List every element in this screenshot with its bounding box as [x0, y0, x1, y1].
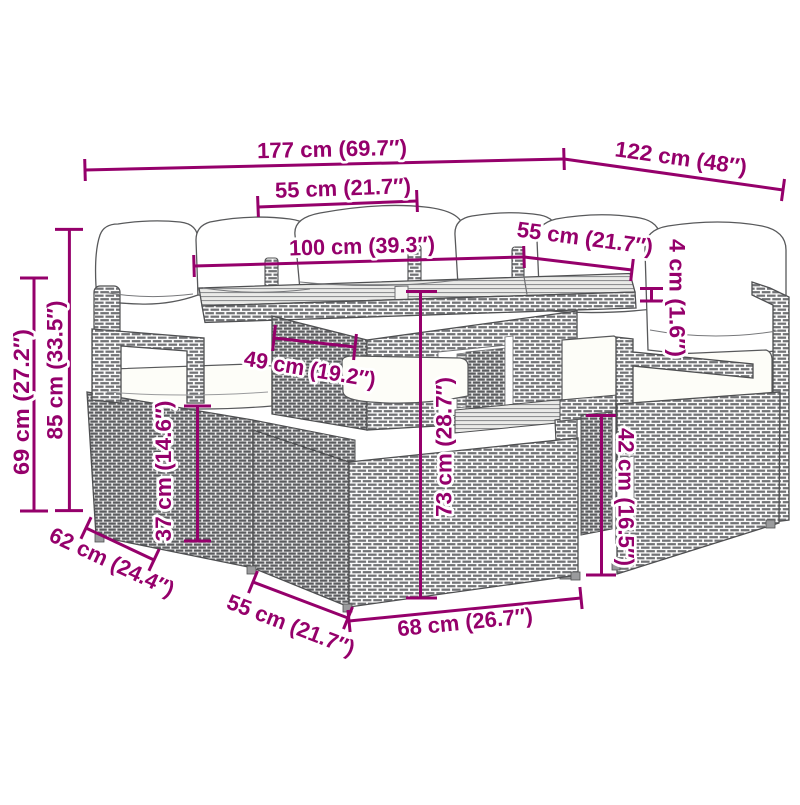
- svg-text:4 cm (1.6″): 4 cm (1.6″): [665, 239, 690, 357]
- svg-text:69 cm (27.2″): 69 cm (27.2″): [9, 329, 34, 475]
- svg-text:42 cm (16.5″): 42 cm (16.5″): [614, 428, 639, 566]
- svg-text:55 cm (21.7″): 55 cm (21.7″): [275, 173, 412, 203]
- svg-text:177 cm (69.7″): 177 cm (69.7″): [257, 135, 408, 163]
- svg-text:100 cm (39.3″): 100 cm (39.3″): [289, 231, 436, 260]
- svg-text:37 cm (14.6″): 37 cm (14.6″): [151, 401, 176, 542]
- svg-text:85 cm (33.5″): 85 cm (33.5″): [43, 301, 68, 440]
- svg-text:73 cm (28.7″): 73 cm (28.7″): [432, 377, 457, 517]
